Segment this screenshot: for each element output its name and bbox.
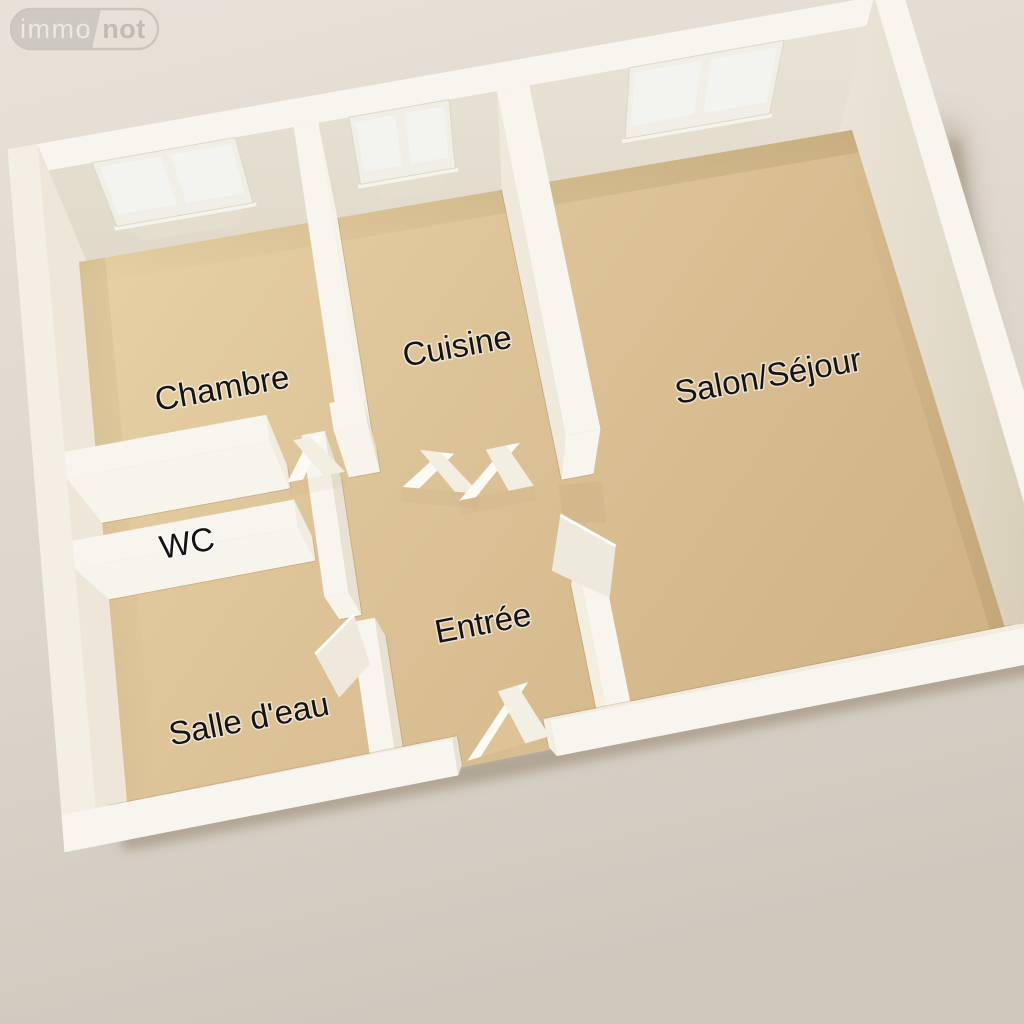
svg-text:not: not (102, 14, 145, 44)
svg-text:immo: immo (20, 14, 92, 44)
